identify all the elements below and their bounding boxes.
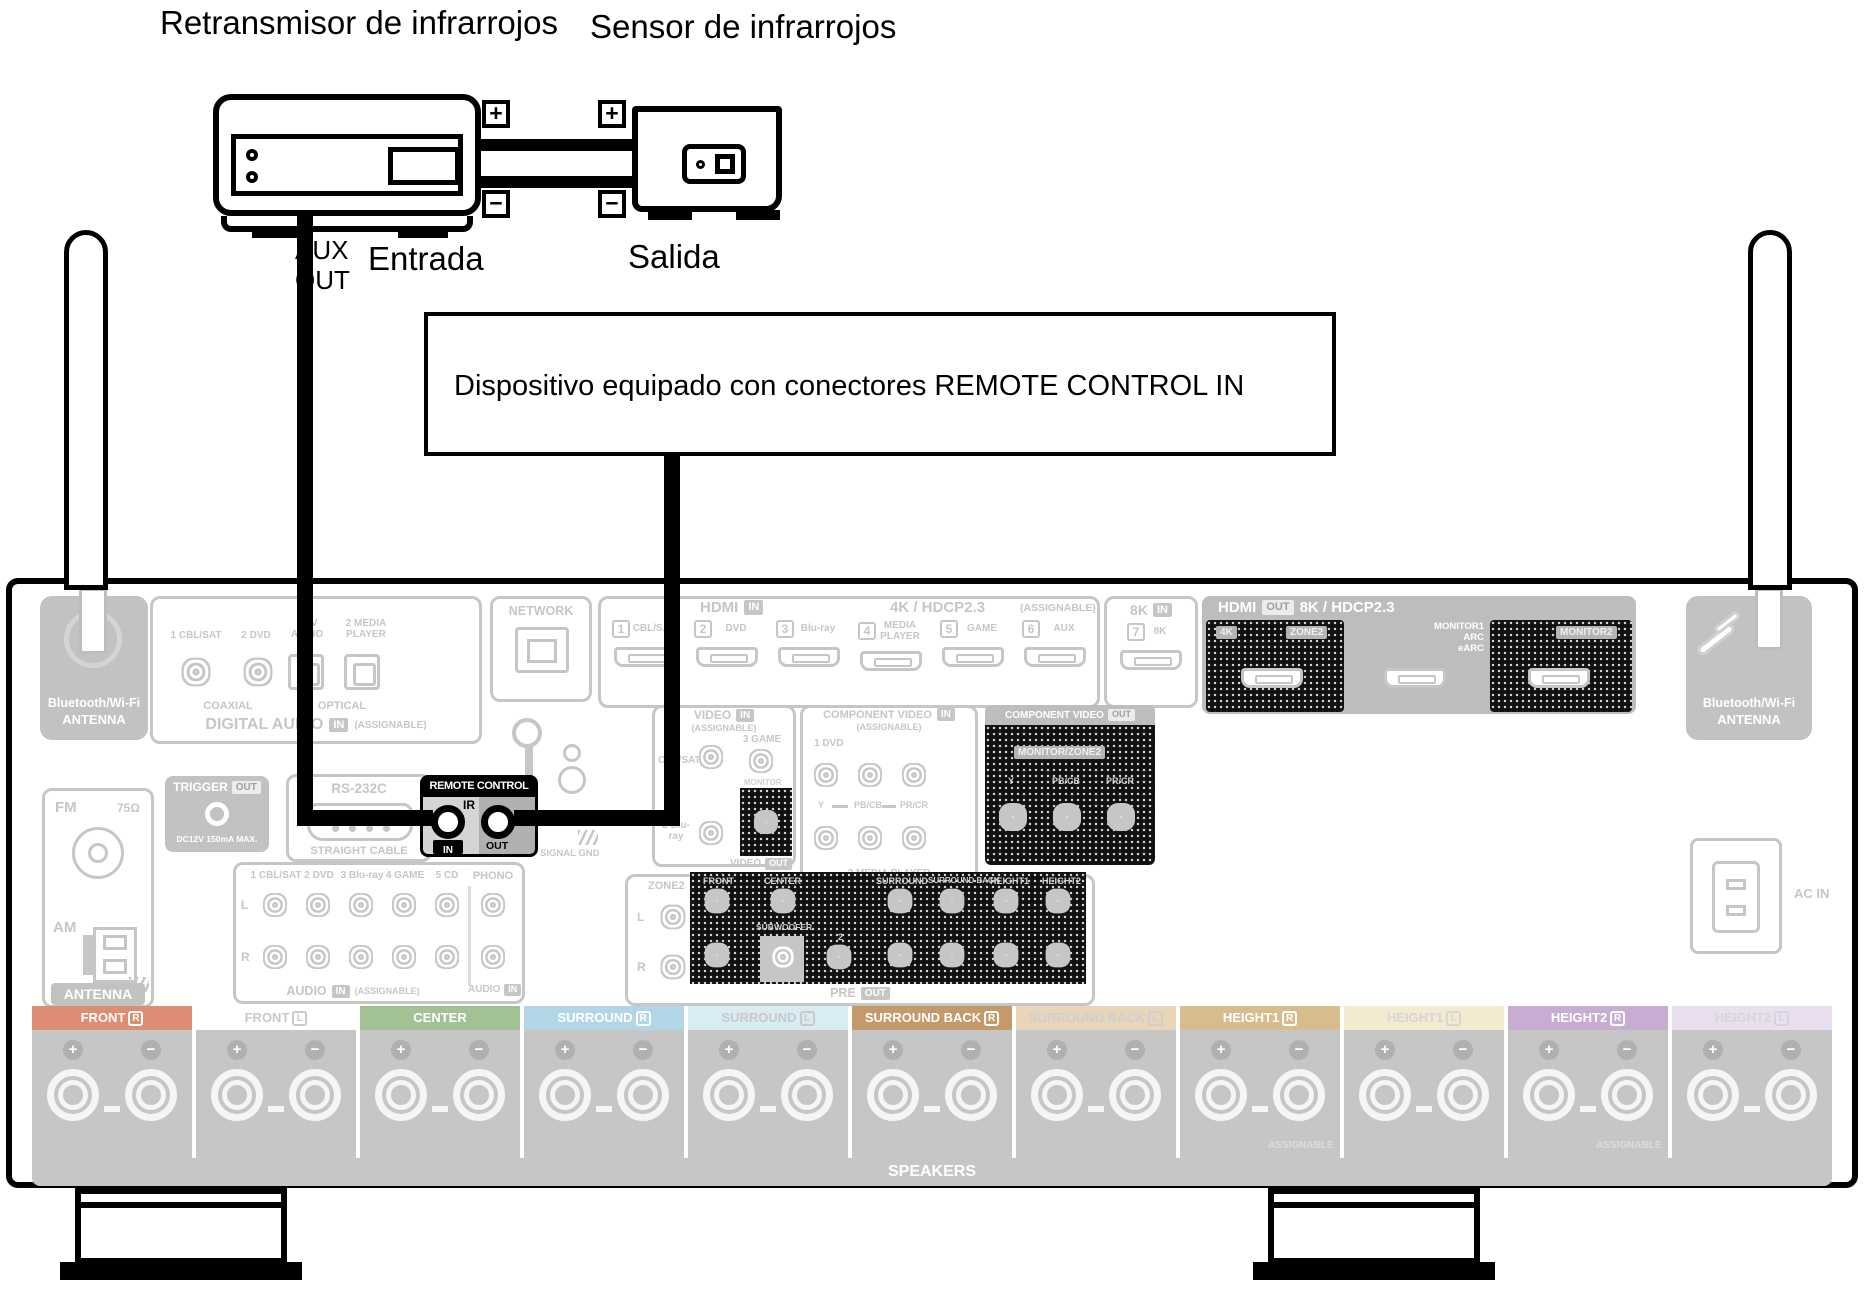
signal-gnd-label: SIGNAL GND [540,848,599,859]
indicator-led [246,171,258,183]
binding-post [1437,1069,1489,1121]
ac-pin [1726,879,1746,890]
sensor-wire [478,176,634,188]
remote-control-title: REMOTE CONTROL [423,780,535,792]
phono-audio-in-title: AUDIO IN [468,984,521,996]
binding-post [125,1069,177,1121]
channel-l-label: L [637,910,644,924]
minus-terminal: − [1617,1040,1637,1060]
trigger-note: DC12V 150mA MAX. [165,834,269,844]
hdmi-connector [1024,647,1086,667]
rs232-note: STRAIGHT CABLE [289,845,429,857]
plus-terminal: + [391,1040,411,1060]
y-label: Y [818,800,824,810]
rca-jack [836,954,842,960]
ethernet-jack-inner [527,639,557,663]
binding-post [1195,1069,1247,1121]
binding-post [1109,1069,1161,1121]
sensor-window [682,144,746,184]
rca-jack [867,772,873,778]
speaker-block-surround-back-r: SURROUND BACKR +− [852,1006,1012,1158]
speaker-block-front-r: FRONTR +− [32,1006,192,1158]
hdmi-8k-title: 8K IN [1107,602,1195,618]
plus-terminal: + [63,1040,83,1060]
ac-socket [1712,861,1760,933]
cable-box-to-remote-out [664,452,680,826]
antenna-label: ANTENNA [64,986,132,1002]
hdmi-port: 2DVD [686,620,768,671]
rca-jack [490,902,496,908]
ir-label: IR [463,798,475,812]
plus-mark: + [482,100,510,128]
preout-height2-label: HEIGHT2 [1042,876,1081,886]
plus-terminal: + [555,1040,575,1060]
hdmi-connector [778,647,840,667]
channel-r-label: R [241,950,250,964]
sensor-eye [715,154,735,174]
fm-label: FM [55,799,77,816]
digital-audio-port-label: 1 CBL/SAT [168,630,224,641]
out-badge: OUT [1262,600,1293,614]
preout-highlight [690,872,1086,984]
rca-jack [1118,814,1125,821]
audio-in-section [233,862,525,1004]
digital-audio-title: DIGITAL AUDIO IN (ASSIGNABLE) [150,716,482,734]
rca-jack [763,819,769,825]
out-badge: OUT [1108,709,1135,721]
rca-jack [911,772,917,778]
subwoofer-2-label: 2 [838,932,843,942]
bt-antenna-mount-right: Bluetooth/Wi-Fi ANTENNA [1686,596,1812,740]
digital-audio-port-label: 2 DVD [234,630,278,641]
dash [832,805,848,808]
device-box-label: Dispositivo equipado con conectores REMO… [454,316,1244,456]
output-caption: Salida [628,238,720,276]
channel-badge: L [1148,1011,1163,1026]
sensor-wire [478,139,634,151]
phono-label: PHONO [470,870,516,882]
zone2-label: ZONE2 [648,880,685,892]
rca-jack [867,835,873,841]
rca-jack [949,898,955,904]
rca-jack [670,964,676,970]
hdmi-in-title: HDMI IN [700,599,763,616]
cord-hook-icon [512,718,542,748]
speakers-strip: SPEAKERS [32,1158,1832,1186]
rca-jack [708,754,714,760]
rca-jack [1003,898,1009,904]
bt-antenna-label: Bluetooth/Wi-Fi [40,696,148,710]
minus-terminal: − [141,1040,161,1060]
plus-mark: + [598,100,626,128]
network-label: NETWORK [493,604,589,618]
binding-post [1687,1069,1739,1121]
component-in-title: COMPONENT VIDEO IN [800,708,978,721]
speaker-block-surround-l: SURROUNDL +− [688,1006,848,1158]
channel-badge: R [636,1011,651,1026]
cable-aux-to-remote-in [297,810,433,826]
minus-terminal: − [1289,1040,1309,1060]
preout-front-label: FRONT [703,876,734,886]
trigger-jack [205,802,229,826]
speaker-block-surround-back-l: SURROUND BACKL +− [1016,1006,1176,1158]
hdmi-out3-monitor2-label: MONITOR2 [1556,626,1617,639]
remote-control-device-box: Dispositivo equipado con conectores REMO… [424,312,1336,456]
out-badge: OUT [232,781,261,794]
coaxial-jack [192,668,199,675]
monitor-label: MONITOR [744,778,782,787]
am-label: AM [53,919,76,936]
minus-terminal: − [305,1040,325,1060]
speakers-label: SPEAKERS [888,1163,976,1180]
channel-badge: R [1610,1011,1625,1026]
receiver-foot-left-pad [60,1262,302,1280]
hdmi-out-title: HDMI OUT 8K / HDCP2.3 [1218,599,1395,616]
fm-jack-inner [88,843,108,863]
in-badge: IN [1153,603,1172,617]
hdmi-connector [1384,668,1446,688]
hdmi-connector [1241,668,1303,688]
impedance-label: 75Ω [117,801,140,815]
subwoofer-label: SUBWOOFER [756,922,812,932]
receiver-foot-left [75,1188,287,1264]
minus-terminal: − [633,1040,653,1060]
binding-post [1523,1069,1575,1121]
minus-terminal: − [961,1040,981,1060]
gnd-screw [558,766,586,794]
plus-terminal: + [1539,1040,1559,1060]
binding-post [1765,1069,1817,1121]
bt-antenna-label: ANTENNA [40,712,148,727]
audio-port-label: 1 CBL/SAT [248,870,304,881]
rca-jack [897,898,903,904]
hdmi-port: 6AUX [1014,620,1096,671]
retransmitter-display [388,147,460,185]
speaker-block-surround-r: SURROUNDR +− [524,1006,684,1158]
component-port-label: 1 DVD [814,738,843,749]
receiver-foot-right [1268,1188,1480,1264]
binding-post [781,1069,833,1121]
rca-jack [758,758,764,764]
rca-jack [401,902,407,908]
rca-jack [358,902,364,908]
channel-badge: R [128,1011,143,1026]
remote-out-jack [481,805,515,839]
plus-terminal: + [227,1040,247,1060]
minus-terminal: − [1125,1040,1145,1060]
indicator-led [246,149,258,161]
rca-jack [780,898,786,904]
component-out-title: COMPONENT VIDEO OUT [985,705,1155,725]
rca-jack [1010,814,1017,821]
rca-jack [1055,898,1061,904]
binding-post [47,1069,99,1121]
out-badge: OUT [861,987,890,1000]
wifi-antenna-left [64,230,108,590]
binding-post [1031,1069,1083,1121]
receiver-foot-right-pad [1253,1262,1495,1280]
plus-terminal: + [883,1040,903,1060]
sensor-foot [736,210,780,220]
rca-jack [272,902,278,908]
audio-in-title: AUDIO IN (ASSIGNABLE) [233,984,473,998]
remote-in-badge: IN [433,840,463,854]
plus-terminal: + [1047,1040,1067,1060]
minus-mark: − [598,190,626,218]
plus-terminal: + [1211,1040,1231,1060]
hdmi-spec-label: 4K / HDCP2.3 [890,599,985,616]
phono-divider [468,886,471,986]
trigger-title: TRIGGER OUT [165,780,269,794]
hdmi-8k-section: 8K IN 78K [1104,596,1198,708]
network-section: NETWORK [490,596,592,702]
binding-post [703,1069,755,1121]
am-terminal-lever [83,935,94,975]
video-out-title: VIDEO OUT [730,858,792,870]
rca-jack [949,952,955,958]
hdmi-out1-zone2-label: ZONE2 [1286,626,1327,639]
video-port-label: 3 GAME [736,734,788,745]
channel-badge: L [1446,1011,1461,1026]
remote-out-label: OUT [486,840,508,852]
in-badge: IN [937,708,955,721]
in-badge: IN [736,709,754,722]
preout-surround-label: SURROUND [876,876,928,886]
channel-l-label: L [241,898,248,912]
gnd-screw [563,744,581,762]
assignable-label: (ASSIGNABLE) [800,722,978,732]
dash [882,805,896,808]
plus-terminal: + [1703,1040,1723,1060]
minus-terminal: − [469,1040,489,1060]
cable-aux-to-remote-in [297,213,313,826]
binding-post [289,1069,341,1121]
coaxial-label: COAXIAL [168,700,288,712]
ac-in-section [1690,838,1782,954]
hdmi-port: 3Blu-ray [768,620,850,671]
binding-post [1273,1069,1325,1121]
ir-retransmitter-device [213,94,481,216]
coaxial-jack [254,668,261,675]
assignable-label: ASSIGNABLE [1596,1140,1662,1151]
pb-label: PB/CB [1052,776,1080,786]
am-terminal-pin [103,959,127,974]
minus-terminal: − [1781,1040,1801,1060]
channel-r-label: R [637,960,646,974]
binding-post [453,1069,505,1121]
input-caption: Entrada [368,240,484,278]
binding-post [1359,1069,1411,1121]
hdmi-connector [696,647,758,667]
cable-box-to-remote-out [514,810,680,826]
rca-jack [401,954,407,960]
retransmitter-label: Retransmisor de infrarrojos [160,2,540,43]
channel-badge: L [1774,1011,1789,1026]
rca-jack [1064,814,1071,821]
rca-jack [714,952,720,958]
audio-port-label: 4 GAME [382,870,428,881]
speaker-block-front-l: FRONTL +− [196,1006,356,1158]
rca-jack [315,954,321,960]
preout-center-label: CENTER [764,876,801,886]
channel-badge: R [1282,1011,1297,1026]
y-label: Y [1008,776,1014,786]
rca-jack [670,914,676,920]
fm-am-antenna-section: FM 75Ω AM ANTENNA [42,788,154,1008]
plus-terminal: + [719,1040,739,1060]
speaker-block-height2-r: HEIGHT2R +− [1508,1006,1668,1158]
binding-post [867,1069,919,1121]
plus-terminal: + [1375,1040,1395,1060]
ac-in-label: AC IN [1794,886,1829,901]
in-badge: IN [332,985,350,998]
sensor-led [696,160,705,169]
speaker-block-height1-r: HEIGHT1R +− [1180,1006,1340,1158]
retransmitter-foot [398,228,448,238]
rca-jack [1003,952,1009,958]
channel-badge: L [800,1011,815,1026]
assignable-label: ASSIGNABLE [1268,1140,1334,1151]
ground-icon [578,830,598,845]
retransmitter-panel [231,134,463,196]
rca-jack [714,898,720,904]
retransmitter-foot [252,228,302,238]
rca-jack [823,835,829,841]
remote-in-jack [431,805,465,839]
pr-label: PR/CR [900,800,928,810]
channel-badge: L [292,1011,307,1026]
antenna-rod-base-right [1755,588,1783,650]
assignable-label: (ASSIGNABLE) [1020,602,1096,614]
optical-jack [344,654,380,690]
am-terminal-pin [103,935,127,950]
minus-terminal: − [797,1040,817,1060]
preout-surround-back-label: SURROUND BACK [928,876,1000,885]
pr-label: PR/CR [1106,776,1134,786]
rca-jack [490,954,496,960]
sensor-foot [648,210,692,220]
rca-jack [823,772,829,778]
hdmi-connector [1528,668,1590,688]
audio-port-label: 5 CD [428,870,466,881]
in-badge: IN [744,600,763,614]
antenna-rod-base-left [79,588,107,654]
rca-jack [315,902,321,908]
monitor-zone2-label: MONITOR/ZONE2 [1014,746,1105,759]
binding-post [539,1069,591,1121]
in-badge: IN [329,718,348,732]
hdmi-out1-4k-label: 4K [1216,626,1237,639]
speaker-block-center: CENTER +− [360,1006,520,1158]
ac-pin [1726,905,1746,916]
rca-jack [897,952,903,958]
pb-label: PB/CB [854,800,882,810]
bt-antenna-label: ANTENNA [1686,712,1812,727]
preout-height1-label: HEIGHT1 [990,876,1029,886]
preout-title: PRE OUT [625,986,1095,1000]
rca-jack [444,954,450,960]
speaker-block-height2-l: HEIGHT2L +− [1672,1006,1832,1158]
ir-sensor-label: Sensor de infrarrojos [590,6,800,47]
minus-terminal: − [1453,1040,1473,1060]
rca-jack [708,830,714,836]
binding-post [211,1069,263,1121]
hdmi-port: 78K [1107,623,1195,670]
hdmi-connector [860,651,922,671]
diagram-canvas: Bluetooth/Wi-Fi ANTENNA Bluetooth/Wi-Fi … [0,0,1866,1289]
rca-jack [358,954,364,960]
hdmi-port: 5GAME [932,620,1014,671]
audio-port-label: 2 DVD [298,870,340,881]
minus-mark: − [482,190,510,218]
rca-jack [272,954,278,960]
digital-audio-port-label: 2 MEDIA PLAYER [340,618,392,640]
hdmi-port: 4MEDIA PLAYER [850,620,932,671]
hdmi-connector [1120,650,1182,670]
hdmi-out2-label: MONITOR1 ARC eARC [1390,622,1484,655]
hdmi-connector [942,647,1004,667]
antenna-strip: ANTENNA [51,983,145,1005]
rca-jack [1055,952,1061,958]
ir-sensor-device [632,106,782,212]
in-badge: IN [504,984,521,996]
out-badge: OUT [765,858,792,870]
rca-jack [444,902,450,908]
speaker-block-height1-l: HEIGHT1L +− [1344,1006,1504,1158]
rca-jack [780,954,786,960]
trigger-out-section: TRIGGER OUT DC12V 150mA MAX. [165,776,269,852]
binding-post [375,1069,427,1121]
binding-post [617,1069,669,1121]
wifi-antenna-right [1748,230,1792,590]
audio-port-label: 3 Blu-ray [338,870,386,881]
binding-post [1601,1069,1653,1121]
bt-antenna-label: Bluetooth/Wi-Fi [1686,696,1812,710]
channel-badge: R [984,1011,999,1026]
binding-post [945,1069,997,1121]
rca-jack [911,835,917,841]
